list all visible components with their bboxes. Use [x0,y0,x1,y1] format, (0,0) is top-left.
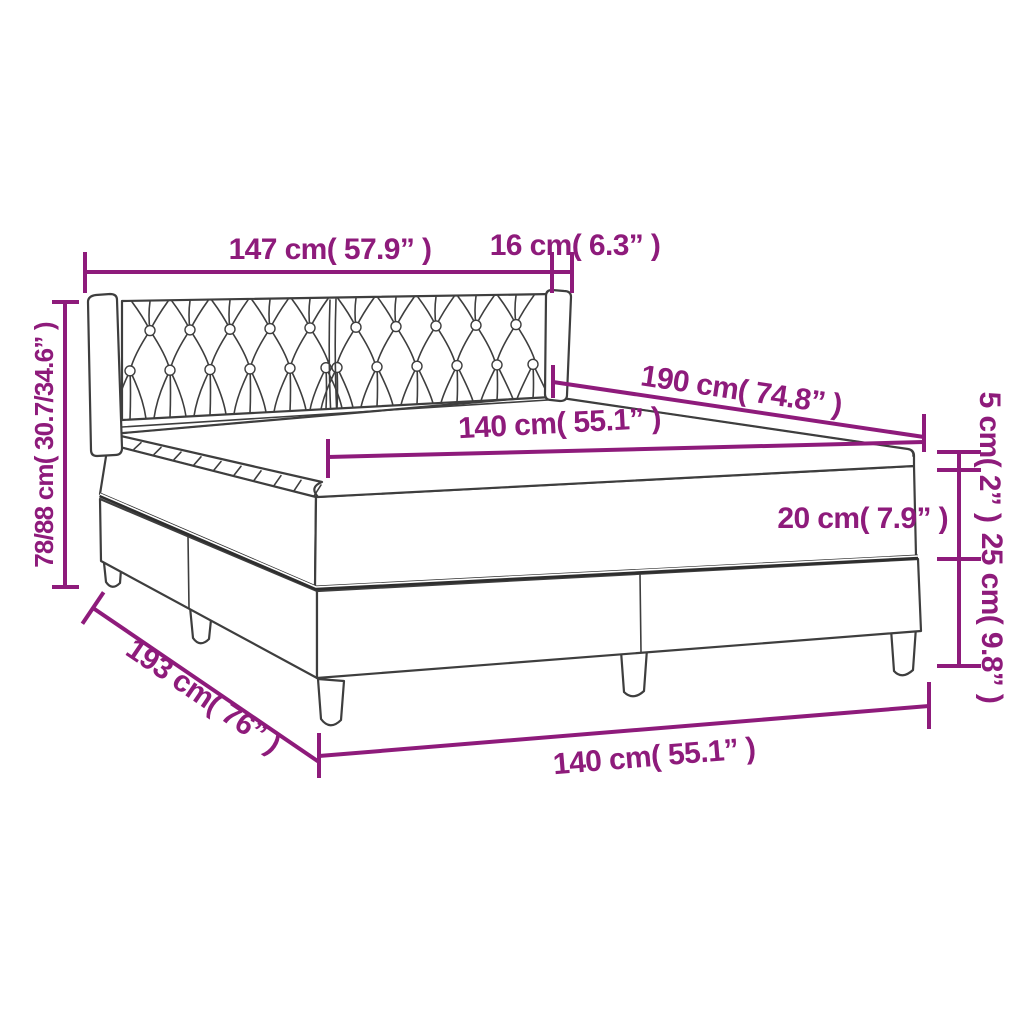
zipper-hatch-mark [174,452,181,460]
tufting-line [170,370,171,417]
zipper-hatch-mark [234,466,241,475]
headboard-left-post [88,294,122,456]
dim-label-length-mattress: 190 cm( 74.8” ) [639,359,844,421]
zipper-hatch-mark [274,476,281,486]
zipper-hatch-mark [194,457,201,465]
tufting-button [265,324,275,334]
dim-corner-depth: 16 cm( 6.3” ) [490,229,661,262]
tufting-button [245,364,255,374]
zipper-hatch-mark [294,480,301,491]
tufting-line [377,367,378,407]
dim-label-headboard-width: 147 cm( 57.9” ) [229,233,432,266]
dim-width-base: 140 cm( 55.1” ) [319,682,929,781]
tufting-line [130,371,131,420]
bed-leg [318,679,344,725]
base-division-foot [640,574,641,652]
dim-label-topper-height: 5 cm( 2” ) [973,392,1006,523]
tufting-button [351,322,361,332]
tufting-line [210,370,211,416]
dim-label-base-height: 25 cm( 9.8” ) [975,533,1008,704]
dim-label-width-base: 140 cm( 55.1” ) [552,732,757,782]
zipper-hatch-mark [154,447,161,454]
tufting-button [332,363,342,373]
zipper-hatch-mark [214,462,221,471]
dim-tick [82,592,103,624]
bed-leg [621,649,647,696]
tufting-button [431,321,441,331]
tufting-button [225,324,235,334]
bed-leg [891,627,916,675]
tufting-button [372,362,382,372]
dim-label-length-total: 193 cm( 76” ) [120,632,287,760]
dim-label-mattress-height: 20 cm( 7.9” ) [777,502,948,535]
dim-label-height-total: 78/88 cm( 30.7/34.6” ) [29,322,59,568]
dim-height-total: 78/88 cm( 30.7/34.6” ) [29,302,79,587]
tufting-button [412,361,422,371]
tufting-line [250,369,251,413]
tufting-button [528,359,538,369]
tufting-button [205,365,215,375]
tufting-button [305,323,315,333]
base-division-left [188,536,189,608]
tufting-button [492,360,502,370]
tufting-button [471,320,481,330]
tufting-button [511,320,521,330]
tufting-line [326,368,327,409]
dim-label-corner-depth: 16 cm( 6.3” ) [490,229,661,262]
tufting-line [290,368,291,411]
tufting-button [391,322,401,332]
tufting-button [185,325,195,335]
tufting-button [165,365,175,375]
bed-dimension-diagram: 147 cm( 57.9” ) 16 cm( 6.3” ) 78/88 cm( … [0,0,1024,1024]
tufting-button [145,326,155,336]
zipper-hatch-mark [134,443,141,450]
diagram-canvas: 147 cm( 57.9” ) 16 cm( 6.3” ) 78/88 cm( … [0,0,1024,1024]
tufting-button [125,366,135,376]
tufting-button [285,363,295,373]
tufting-line [417,366,418,404]
zipper-hatch-mark [254,471,261,481]
tufting-button [452,361,462,371]
